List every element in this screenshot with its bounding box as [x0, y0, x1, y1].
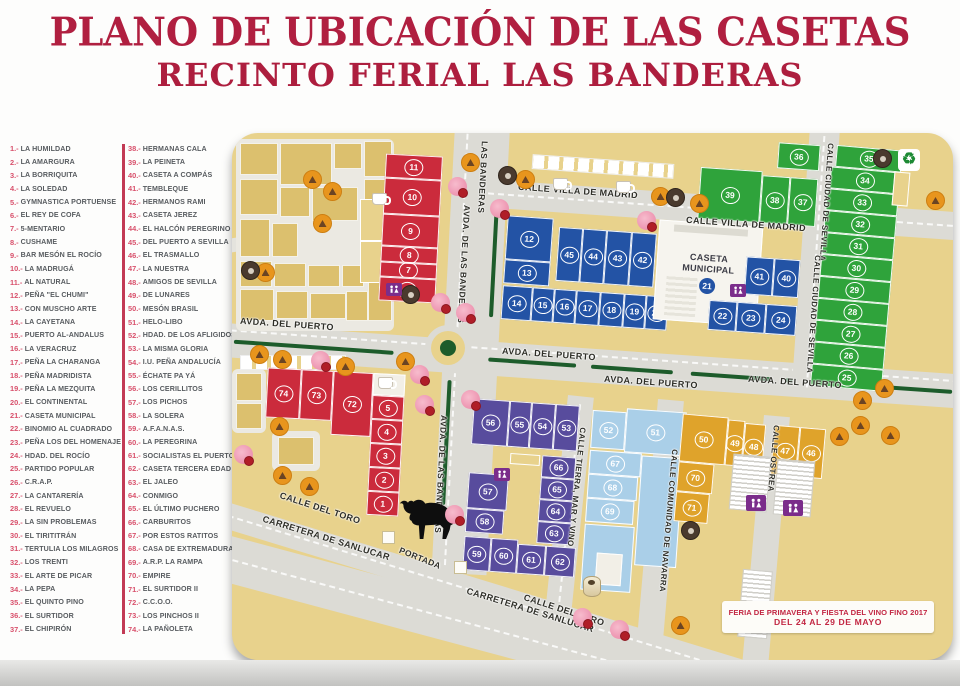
legend-item: 16.- LA VERACRUZ	[10, 342, 114, 355]
food-stall-icon	[313, 214, 332, 233]
legend-item-number: 52.-	[128, 331, 141, 340]
legend-item: 32.- LOS TRENTI	[10, 556, 114, 569]
legend-item-number: 46.-	[128, 251, 141, 260]
caseta-9: 9	[381, 214, 440, 249]
legend-item-name: LA SIN PROBLEMAS	[25, 518, 97, 526]
legend-item-name: LA MISMA GLORIA	[143, 345, 209, 353]
legend-item: 27.- LA CANTARERÍA	[10, 489, 114, 502]
legend-item-number: 14.-	[10, 318, 23, 327]
legend-item-name: CON MUSCHO ARTE	[25, 305, 97, 313]
legend-item-number: 68.-	[128, 544, 141, 553]
legend-item: 19.- PEÑA LA MEZQUITA	[10, 382, 114, 395]
legend-item-name: BAR MESÓN EL ROCÍO	[21, 251, 102, 259]
banner-line-2: DEL 24 AL 29 DE MAYO	[774, 617, 882, 627]
legend-item-name: LOS CERILLITOS	[143, 385, 203, 393]
legend-item-name: EL ÚLTIMO PUCHERO	[143, 505, 220, 513]
tree-icon	[637, 211, 656, 230]
caseta-74: 74	[265, 367, 302, 419]
legend-item-number: 49.-	[128, 291, 141, 300]
caseta-37: 37	[787, 177, 818, 227]
caseta-2: 2	[367, 467, 400, 493]
caseta-22: 22	[707, 300, 737, 332]
building	[276, 291, 308, 319]
caseta-13: 13	[503, 259, 551, 286]
legend-item-name: HDAD. DEL ROCÍO	[25, 452, 90, 460]
caseta-73: 73	[299, 369, 334, 421]
legend-item-number: 51.-	[128, 318, 141, 327]
legend-item-number: 20.-	[10, 398, 23, 407]
legend-item-name: LA HUMILDAD	[21, 145, 71, 153]
legend-item: 21.- CASETA MUNICIPAL	[10, 409, 114, 422]
legend-item: 58.- LA SOLERA	[128, 409, 240, 422]
legend-item: 12.- PEÑA "EL CHUMI"	[10, 289, 114, 302]
legend-item-name: LA PEINETA	[143, 158, 185, 166]
caseta-36: 36	[777, 142, 821, 171]
legend-item-number: 31.-	[10, 544, 23, 553]
legend-item-name: EL SURTIDOR	[25, 612, 74, 620]
legend-item: 49.- DE LUNARES	[128, 289, 240, 302]
legend-item: 2.- LA AMARGURA	[10, 155, 114, 168]
coffee-cup-icon	[553, 178, 568, 190]
legend-item: 50.- MESÓN BRASIL	[128, 302, 240, 315]
legend-item: 5.- GYMNASTICA PORTUENSE	[10, 195, 114, 208]
caseta-60: 60	[489, 538, 518, 574]
legend-item-name: HELO-LIBO	[143, 318, 183, 326]
page-subtitle: RECINTO FERIAL LAS BANDERAS	[0, 56, 960, 94]
legend-column-2: 38.- HERMANAS CALA 39.- LA PEINETA 40.- …	[128, 142, 240, 636]
legend-item: 61.- SOCIALISTAS EL PUERTO	[128, 449, 240, 462]
building	[236, 403, 262, 429]
legend-item: 66.- CARBURITOS	[128, 516, 240, 529]
legend-item: 20.- EL CONTINENTAL	[10, 396, 114, 409]
legend-item-number: 53.-	[128, 344, 141, 353]
restroom-icon	[494, 468, 510, 481]
roundabout-center	[440, 340, 456, 356]
legend-item-number: 13.-	[10, 304, 23, 313]
caseta-67: 67	[588, 450, 642, 478]
legend-item-name: C.C.O.O.	[143, 598, 173, 606]
legend-item: 29.- LA SIN PROBLEMAS	[10, 516, 114, 529]
legend-item-number: 43.-	[128, 211, 141, 220]
restroom-icon	[730, 284, 746, 297]
legend-item-name: LA PEPA	[25, 585, 56, 593]
caseta-5: 5	[371, 395, 404, 421]
legend-item: 72.- C.C.O.O.	[128, 596, 240, 609]
legend-item-name: EL SURTIDOR II	[143, 585, 198, 593]
legend-item-number: 74.-	[128, 625, 141, 634]
building	[272, 223, 298, 257]
food-stall-icon	[270, 417, 289, 436]
legend-item-number: 22.-	[10, 424, 23, 433]
kiosk-icon	[498, 166, 517, 185]
legend-item: 56.- LOS CERILLITOS	[128, 382, 240, 395]
legend-item-number: 25.-	[10, 464, 23, 473]
barrel-icon	[583, 576, 601, 597]
legend-item-name: EMPIRE	[143, 572, 171, 580]
food-stall-icon	[303, 170, 322, 189]
legend-item-name: TEMBLEQUE	[143, 185, 188, 193]
legend-item: 23.- PEÑA LOS DEL HOMENAJE	[10, 436, 114, 449]
legend-item-name: C.R.A.P.	[25, 478, 53, 486]
legend-item: 15.- PUERTO AL-ANDALUS	[10, 329, 114, 342]
legend-item: 31.- TERTULIA LOS MILAGROS	[10, 542, 114, 555]
building	[240, 219, 270, 257]
tree-icon	[456, 303, 475, 322]
legend-item: 34.- LA PEPA	[10, 582, 114, 595]
legend-item-name: EL CONTINENTAL	[25, 398, 88, 406]
legend-item: 53.- LA MISMA GLORIA	[128, 342, 240, 355]
food-stall-icon	[396, 352, 415, 371]
legend-item: 7.- 5-MENTARIO	[10, 222, 114, 235]
legend-item: 37.- EL CHIPIRÓN	[10, 622, 114, 635]
coffee-cup-icon	[378, 377, 393, 389]
legend-item: 39.- LA PEINETA	[128, 155, 240, 168]
legend-item-name: PARTIDO POPULAR	[25, 465, 95, 473]
food-stall-icon	[926, 191, 945, 210]
portada-gate	[454, 561, 467, 574]
legend-item: 3.- LA BORRIQUITA	[10, 169, 114, 182]
caseta-61: 61	[516, 544, 546, 576]
legend-item-name: EL TIRITITRÁN	[25, 532, 77, 540]
legend-item: 68.- CASA DE EXTREMADURA	[128, 542, 240, 555]
legend-item-number: 11.-	[10, 278, 22, 287]
caseta-block-blue-west: 12 13 45 44 43 42 14 15 16 17 18 19 20	[501, 215, 674, 330]
tree-icon	[448, 177, 467, 196]
tree-icon	[461, 390, 480, 409]
legend-item-number: 62.-	[128, 464, 141, 473]
caseta-70: 70	[676, 461, 714, 494]
legend-item: 18.- PEÑA MADRIDISTA	[10, 369, 114, 382]
legend-item-name: EL TRASMALLO	[143, 251, 200, 259]
legend-item-name: CASETA MUNICIPAL	[25, 412, 96, 420]
legend-item-number: 6.-	[10, 211, 19, 220]
legend-item-number: 35.-	[10, 598, 23, 607]
legend-item-name: CASA DE EXTREMADURA	[143, 545, 234, 553]
legend-item-name: CASETA A COMPÁS	[143, 171, 213, 179]
legend-item: 36.- EL SURTIDOR	[10, 609, 114, 622]
legend-item-number: 56.-	[128, 384, 141, 393]
legend-item-number: 10.-	[10, 264, 23, 273]
caseta-15: 15	[531, 287, 555, 322]
kiosk-icon	[241, 261, 260, 280]
legend-item-name: EL QUINTO PINO	[25, 598, 84, 606]
legend-item-name: EL HALCÓN PEREGRINO	[143, 225, 231, 233]
legend-item: 70.- EMPIRE	[128, 569, 240, 582]
legend-item: 46.- EL TRASMALLO	[128, 249, 240, 262]
caseta-50: 50	[679, 413, 729, 465]
tree-icon	[410, 365, 429, 384]
legend-item: 71.- EL SURTIDOR II	[128, 582, 240, 595]
legend-item: 11.- AL NATURAL	[10, 275, 114, 288]
building	[240, 143, 278, 175]
building	[240, 179, 278, 215]
legend-item-name: PEÑA LOS DEL HOMENAJE	[25, 438, 121, 446]
food-stall-icon	[273, 466, 292, 485]
caseta-62: 62	[544, 546, 576, 578]
legend-item-number: 54.-	[128, 358, 141, 367]
legend-item-number: 73.-	[128, 611, 141, 620]
caseta-43: 43	[603, 230, 632, 286]
legend-item-number: 63.-	[128, 478, 141, 487]
restroom-icon	[783, 500, 803, 516]
legend-item-number: 12.-	[10, 291, 23, 300]
legend-item: 10.- LA MADRUGÁ	[10, 262, 114, 275]
legend-item-name: PUERTO AL-ANDALUS	[25, 331, 104, 339]
legend-item: 69.- A.R.P. LA RAMPA	[128, 556, 240, 569]
caseta-block-green-north: 36 39 38 37	[697, 137, 820, 227]
legend-item-name: LA BORRIQUITA	[21, 171, 78, 179]
legend-item-name: CONMIGO	[143, 492, 178, 500]
small-kiosk	[892, 171, 911, 206]
tree-icon	[415, 395, 434, 414]
legend-item-name: LOS PINCHOS II	[143, 612, 199, 620]
food-stall-icon	[853, 391, 872, 410]
legend-item: 33.- EL ARTE DE PICAR	[10, 569, 114, 582]
building	[310, 293, 346, 319]
legend-item: 8.- CUSHAME	[10, 235, 114, 248]
caseta-3: 3	[369, 443, 402, 469]
caseta-39: 39	[697, 167, 762, 223]
legend-item-name: LA SOLEDAD	[21, 185, 68, 193]
legend-item: 63.- EL JALEO	[128, 476, 240, 489]
legend-item: 44.- EL HALCÓN PEREGRINO	[128, 222, 240, 235]
legend-item-number: 21.-	[10, 411, 23, 420]
legend-item-name: EL ARTE DE PICAR	[25, 572, 92, 580]
legend-item: 42.- HERMANOS RAMI	[128, 195, 240, 208]
legend-item-number: 60.-	[128, 438, 141, 447]
parking-row	[532, 154, 675, 179]
median-strip	[591, 365, 673, 375]
restroom-icon	[386, 283, 402, 296]
caseta-16: 16	[552, 289, 576, 324]
caseta-23: 23	[735, 302, 766, 334]
legend-item-number: 27.-	[10, 491, 23, 500]
food-stall-icon	[851, 416, 870, 435]
legend-item-number: 59.-	[128, 424, 141, 433]
legend-item-name: EL REVUELO	[25, 505, 71, 513]
legend-item-number: 58.-	[128, 411, 141, 420]
legend-item: 30.- EL TIRITITRÁN	[10, 529, 114, 542]
legend-item: 35.- EL QUINTO PINO	[10, 596, 114, 609]
legend-item-number: 36.-	[10, 611, 23, 620]
legend-item: 40.- CASETA A COMPÁS	[128, 169, 240, 182]
caseta-18: 18	[598, 292, 624, 328]
legend-item-name: SOCIALISTAS EL PUERTO	[143, 452, 235, 460]
legend-item-name: DE LUNARES	[143, 291, 190, 299]
legend-item-name: CARBURITOS	[143, 518, 191, 526]
legend-item-number: 33.-	[10, 571, 23, 580]
caseta-66: 66	[541, 455, 576, 479]
legend-item-number: 65.-	[128, 504, 141, 513]
legend-item-name: LA CANTARERÍA	[25, 492, 84, 500]
caseta-68: 68	[587, 474, 639, 501]
legend-item-number: 40.-	[128, 171, 141, 180]
legend-item-number: 5.-	[10, 198, 19, 207]
legend-item: 47.- LA NUESTRA	[128, 262, 240, 275]
legend-item-name: TERTULIA LOS MILAGROS	[25, 545, 119, 553]
legend-column-1: 1.- LA HUMILDAD 2.- LA AMARGURA 3.- LA B…	[10, 142, 114, 636]
legend-item-number: 2.-	[10, 158, 19, 167]
legend-item-name: LOS TRENTI	[25, 558, 68, 566]
legend-item-number: 64.-	[128, 491, 141, 500]
legend-item: 73.- LOS PINCHOS II	[128, 609, 240, 622]
legend-item-name: MESÓN BRASIL	[143, 305, 199, 313]
legend-item-name: LA SOLERA	[143, 412, 185, 420]
kiosk-icon	[666, 188, 685, 207]
legend-item: 25.- PARTIDO POPULAR	[10, 462, 114, 475]
legend-item-number: 1.-	[10, 144, 19, 153]
legend-item-number: 4.-	[10, 184, 19, 193]
legend-item-name: LA PAÑOLETA	[143, 625, 193, 633]
caseta-17: 17	[574, 290, 600, 326]
building-cluster	[232, 369, 266, 433]
kiosk-icon	[401, 285, 420, 304]
legend-item: 17.- PEÑA LA CHARANGA	[10, 356, 114, 369]
food-stall-icon	[516, 170, 535, 189]
coffee-cup-icon	[372, 193, 387, 205]
caseta-41: 41	[744, 256, 775, 296]
legend-item-number: 15.-	[10, 331, 23, 340]
legend-item-name: LA CAYETANA	[25, 318, 76, 326]
legend-item-name: PEÑA "EL CHUMI"	[25, 291, 89, 299]
legend-item-name: EL CHIPIRÓN	[25, 625, 72, 633]
legend-item-number: 26.-	[10, 478, 23, 487]
caseta-54: 54	[529, 402, 556, 450]
legend-item-name: A.F.A.N.A.S.	[143, 425, 185, 433]
legend-item-number: 17.-	[10, 358, 23, 367]
caseta-52: 52	[590, 410, 627, 450]
legend-item-name: CASETA TERCERA EDAD	[143, 465, 231, 473]
tree-icon	[610, 620, 629, 639]
legend-item-name: 5-MENTARIO	[21, 225, 66, 233]
legend-item-number: 66.-	[128, 518, 141, 527]
fair-map: 11 10 9 8 7 6 74 73 72 5 4 3 2 1 12 13 4…	[232, 133, 953, 660]
legend-item-number: 50.-	[128, 304, 141, 313]
legend-item-name: LA AMARGURA	[21, 158, 75, 166]
tree-icon	[431, 293, 450, 312]
food-stall-icon	[830, 427, 849, 446]
legend-item: 24.- HDAD. DEL ROCÍO	[10, 449, 114, 462]
caseta-1: 1	[366, 491, 399, 517]
legend-item-name: EL JALEO	[143, 478, 178, 486]
legend-item: 38.- HERMANAS CALA	[128, 142, 240, 155]
food-stall-icon	[461, 153, 480, 172]
legend-item: 6.- EL REY DE COFA	[10, 209, 114, 222]
legend-item: 45.- DEL PUERTO A SEVILLA	[128, 235, 240, 248]
building	[346, 291, 368, 321]
caseta-4: 4	[370, 419, 403, 445]
legend-item-number: 34.-	[10, 585, 23, 594]
caseta-38: 38	[759, 175, 790, 225]
small-kiosk	[510, 453, 541, 466]
tree-icon	[573, 608, 592, 627]
legend-item-name: CASETA JEREZ	[143, 211, 197, 219]
legend-item: 51.- HELO-LIBO	[128, 315, 240, 328]
legend-item-number: 28.-	[10, 504, 23, 513]
tree-icon	[490, 199, 509, 218]
legend-item: 55.- ÉCHATE PA YÁ	[128, 369, 240, 382]
legend-item: 41.- TEMBLEQUE	[128, 182, 240, 195]
legend-divider	[122, 144, 125, 634]
recycle-icon: ♻	[898, 149, 920, 171]
legend-item-number: 37.-	[10, 625, 23, 634]
poster: PLANO DE UBICACIÓN DE LAS CASETAS RECINT…	[0, 0, 960, 686]
event-banner: FERIA DE PRIMAVERA Y FIESTA DEL VINO FIN…	[722, 601, 934, 633]
legend-item-number: 38.-	[128, 144, 141, 153]
legend-item-name: PEÑA LA CHARANGA	[25, 358, 101, 366]
legend-item-name: A.R.P. LA RAMPA	[143, 558, 203, 566]
legend-item: 62.- CASETA TERCERA EDAD	[128, 462, 240, 475]
food-stall-icon	[250, 345, 269, 364]
legend-item-name: AMIGOS DE SEVILLA	[143, 278, 217, 286]
legend-item-number: 48.-	[128, 278, 141, 287]
page-title: PLANO DE UBICACIÓN DE LAS CASETAS	[0, 9, 960, 55]
building-strip	[360, 199, 384, 241]
legend-item-number: 42.-	[128, 198, 141, 207]
legend-item: 48.- AMIGOS DE SEVILLA	[128, 275, 240, 288]
caseta-11: 11	[385, 154, 443, 181]
legend-item-name: I.U. PEÑA ANDALUCÍA	[143, 358, 221, 366]
legend-item-name: PEÑA MADRIDISTA	[25, 372, 92, 380]
legend-item-number: 57.-	[128, 398, 141, 407]
food-stall-icon	[881, 426, 900, 445]
legend-item-number: 44.-	[128, 224, 141, 233]
legend-item-name: PEÑA LA MEZQUITA	[25, 385, 96, 393]
caseta-12: 12	[505, 215, 554, 262]
legend-item-number: 71.-	[128, 585, 141, 594]
caseta-58: 58	[465, 508, 505, 535]
restroom-icon	[746, 495, 766, 511]
caseta-10: 10	[383, 178, 442, 217]
legend-item: 74.- LA PAÑOLETA	[128, 622, 240, 635]
food-stall-icon	[336, 357, 355, 376]
legend-item: 67.- POR ESTOS RATITOS	[128, 529, 240, 542]
photo-edge	[0, 660, 960, 686]
legend-item: 14.- LA CAYETANA	[10, 315, 114, 328]
legend-item: 60.- LA PEREGRINA	[128, 436, 240, 449]
food-stall-icon	[300, 477, 319, 496]
legend-item: 43.- CASETA JEREZ	[128, 209, 240, 222]
legend-item-number: 69.-	[128, 558, 141, 567]
legend-item-number: 72.-	[128, 598, 141, 607]
legend-item-name: ÉCHATE PA YÁ	[143, 372, 196, 380]
coffee-cup-icon	[616, 181, 631, 193]
legend-item: 65.- EL ÚLTIMO PUCHERO	[128, 502, 240, 515]
tree-icon	[311, 351, 330, 370]
legend-item-number: 9.-	[10, 251, 19, 260]
legend-item: 28.- EL REVUELO	[10, 502, 114, 515]
legend-item-name: AL NATURAL	[24, 278, 70, 286]
legend-item-number: 45.-	[128, 238, 141, 247]
legend-item: 22.- BINOMIO AL CUADRADO	[10, 422, 114, 435]
caseta-block-blue-east: 41 40 22 23 24	[707, 254, 800, 336]
legend-item-number: 3.-	[10, 171, 19, 180]
legend-item-name: POR ESTOS RATITOS	[143, 532, 218, 540]
legend-item-number: 30.-	[10, 531, 23, 540]
kiosk-icon	[681, 521, 700, 540]
legend-item-name: HERMANOS RAMI	[143, 198, 206, 206]
legend-item: 54.- I.U. PEÑA ANDALUCÍA	[128, 356, 240, 369]
caseta-19: 19	[622, 294, 646, 329]
legend-item-number: 47.-	[128, 264, 141, 273]
legend-item: 4.- LA SOLEDAD	[10, 182, 114, 195]
caseta-69: 69	[585, 498, 635, 525]
caseta-24: 24	[764, 304, 797, 336]
legend-item-name: EL REY DE COFA	[21, 211, 81, 219]
food-stall-icon	[875, 379, 894, 398]
legend-item-number: 55.-	[128, 371, 141, 380]
building	[308, 265, 340, 287]
